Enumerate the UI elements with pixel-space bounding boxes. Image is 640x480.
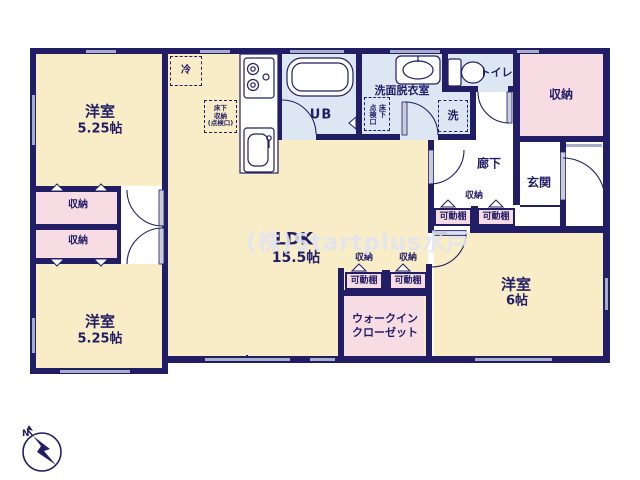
- door-leaf: [159, 228, 164, 264]
- room-label: 洋室: [501, 277, 531, 294]
- underfloor-storage-hatch: 床下 収納 (点検口): [204, 100, 237, 133]
- refrigerator-label: 冷: [181, 65, 191, 76]
- room-label: 洋室: [85, 314, 115, 331]
- movable-shelf-label: 可動棚: [482, 212, 509, 222]
- movable-shelf-label: 可動棚: [439, 212, 466, 222]
- closet-door-marker: [489, 200, 503, 207]
- closet-door-marker: [352, 264, 366, 271]
- washing-machine-space: 洗: [438, 100, 468, 132]
- door-swing-arc: [127, 190, 163, 226]
- room-label: トイレ: [480, 67, 513, 79]
- door-swing-arc: [430, 150, 464, 184]
- stove-icon: [244, 58, 274, 98]
- room-label: 収納: [68, 199, 88, 210]
- room-size-label: 6帖: [506, 295, 528, 310]
- door-swing-arc: [127, 228, 163, 264]
- door-leaf: [402, 102, 407, 135]
- room-label: 収納: [549, 88, 573, 101]
- underfloor-storage-label: (点検口): [208, 120, 233, 128]
- door-swing-arc: [478, 92, 509, 123]
- compass-north-label: N: [22, 429, 30, 439]
- toilet-icon: [448, 59, 461, 86]
- room-label: ウォークイン: [352, 313, 418, 325]
- door-leaf: [507, 92, 512, 123]
- closet-door-marker: [396, 264, 410, 271]
- room-label: 廊下: [477, 157, 501, 170]
- underfloor-hatch-label: 床下 点検口: [368, 104, 387, 125]
- room-size-label: 5.25帖: [77, 123, 122, 138]
- door-leaf: [159, 190, 164, 226]
- door-swing-arc: [405, 102, 438, 135]
- closet-door-marker: [441, 200, 455, 207]
- washing-machine-label: 洗: [448, 110, 459, 122]
- room-label: クローゼット: [352, 327, 418, 339]
- closet-door-marker: [94, 259, 108, 266]
- underfloor-inspection-hatch: 床下 点検口: [364, 97, 390, 131]
- closet-door-marker: [94, 184, 108, 191]
- floor-plan: 冷 床下 収納 (点検口) 床下 点検口 洗: [0, 0, 640, 480]
- room-label: 洗面脱衣室: [375, 85, 430, 97]
- room-label: 洋室: [85, 104, 115, 121]
- room-label: UB: [310, 109, 332, 124]
- closet-label: 収納: [465, 191, 483, 201]
- closet-door-marker: [50, 184, 64, 191]
- door-leaf: [429, 150, 434, 184]
- door-swing-arc: [563, 158, 605, 200]
- watermark-text: (株)Startplus水戸: [246, 223, 470, 257]
- bath-door-marker: [349, 117, 356, 129]
- refrigerator-space: 冷: [170, 56, 202, 86]
- room-label: 収納: [68, 235, 88, 246]
- closet-door-marker: [50, 259, 64, 266]
- room-label: 玄関: [527, 176, 551, 189]
- movable-shelf-label: 可動棚: [394, 276, 421, 286]
- movable-shelf-label: 可動棚: [350, 276, 377, 286]
- room-size-label: 5.25帖: [77, 333, 122, 348]
- compass-icon: N: [22, 425, 61, 471]
- door-leaf: [561, 152, 566, 200]
